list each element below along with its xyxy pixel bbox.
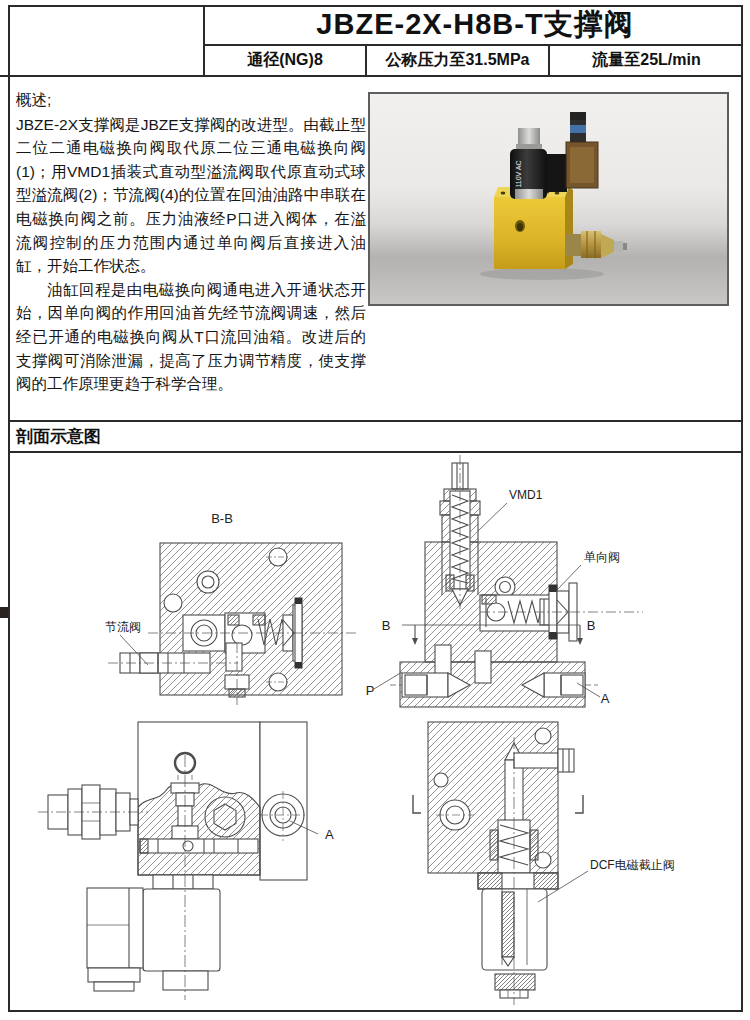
port-a-label: A bbox=[601, 691, 610, 706]
port-p-leader bbox=[374, 672, 402, 689]
spec-flow: 流量至25L/min bbox=[550, 46, 743, 75]
coil-voltage-label: 110V AC bbox=[515, 160, 522, 187]
bb-view-title: B-B bbox=[211, 511, 233, 526]
overview-paragraph-2: 油缸回程是由电磁换向阀通电进入开通状态开始，因单向阀的作用回油首先经节流阀调速，… bbox=[16, 278, 366, 396]
section-mark-b-left: B bbox=[382, 618, 391, 633]
valve-block bbox=[494, 187, 573, 269]
section-heading: 剖面示意图 bbox=[16, 425, 101, 448]
side-left-fitting bbox=[38, 785, 148, 839]
bb-section-view bbox=[108, 543, 358, 705]
side-din-connector bbox=[87, 888, 143, 991]
product-photo: 110V AC bbox=[370, 94, 727, 304]
page-title: JBZE-2X-H8B-T支撑阀 bbox=[316, 5, 633, 45]
overview-section: 概述; JBZE-2X支撑阀是JBZE支撑阀的改进型。由截止型二位二通电磁换向阀… bbox=[16, 88, 366, 396]
check-valve-label: 单向阀 bbox=[584, 550, 620, 564]
product-photo-frame: 110V AC bbox=[368, 92, 729, 306]
header: JBZE-2X-H8B-T支撑阀 bbox=[205, 5, 745, 44]
section-mark-b-right: B bbox=[587, 618, 596, 633]
side-view bbox=[38, 722, 318, 1000]
vert-section-mark-right bbox=[575, 795, 583, 813]
overview-paragraph-1: JBZE-2X支撑阀是JBZE支撑阀的改进型。由截止型二位二通电磁换向阀取代原二… bbox=[16, 113, 366, 278]
side-port-a-label: A bbox=[325, 827, 334, 842]
photo-shadow bbox=[480, 268, 604, 280]
header-bottom-rule bbox=[0, 75, 743, 77]
vertical-section-view bbox=[413, 722, 588, 1005]
spec-pressure: 公称压力至31.5MPa bbox=[367, 46, 548, 75]
overview-heading: 概述; bbox=[16, 88, 366, 112]
section-bottom-rule bbox=[8, 451, 743, 453]
section-top-rule bbox=[8, 420, 743, 422]
port-p-label: P bbox=[366, 683, 375, 698]
throttle-valve-label: 节流阀 bbox=[105, 620, 141, 634]
vmd1-relief-cartridge bbox=[440, 455, 480, 611]
vmd1-label: VMD1 bbox=[509, 488, 543, 502]
page-index-tab bbox=[0, 607, 8, 618]
datasheet-page: JBZE-2X-H8B-T支撑阀 通径(NG)8 公称压力至31.5MPa 流量… bbox=[0, 0, 750, 1020]
cross-section-drawings: VMD1 单向阀 B B P A bbox=[8, 455, 743, 1010]
vert-section-mark-left bbox=[413, 795, 421, 813]
solenoid-plunger bbox=[502, 892, 514, 957]
vmd1-leader bbox=[478, 503, 507, 531]
blue-fitting-band bbox=[570, 125, 586, 133]
spec-bore: 通径(NG)8 bbox=[205, 46, 365, 75]
side-seat-hatch bbox=[138, 784, 260, 875]
dcf-valve-label: DCF电磁截止阀 bbox=[590, 858, 675, 872]
side-cross-rod bbox=[140, 839, 258, 853]
